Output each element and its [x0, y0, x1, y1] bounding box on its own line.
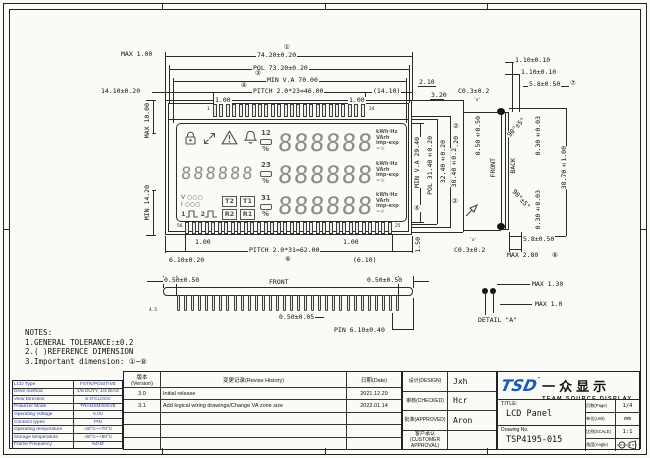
dim-line [463, 112, 501, 113]
meta-value: mm [616, 413, 639, 425]
bell-icon [244, 130, 257, 145]
pin-label-56: 56 [176, 225, 183, 230]
dim-line [392, 329, 413, 330]
meta-row: 角度(Angle) [585, 438, 639, 451]
signoff-label: 批准(APPROVED) [403, 411, 447, 430]
dim-s-1-10-b: 1.10±0.10 [520, 69, 557, 76]
pin [192, 222, 196, 234]
revision-date [346, 438, 401, 449]
dim-line [505, 74, 519, 75]
r1-box: R1 [240, 209, 255, 220]
spec-row: View Direction6 O'CLOCK [13, 395, 122, 403]
signoff-table: 设计(DESIGN)Jxh审核(CHECKED)Hcr批准(APPROVED)A… [402, 371, 497, 450]
unit-line: ~☼ [376, 147, 399, 153]
pin [264, 104, 268, 117]
meta-row: 单位(Unit)mm [585, 412, 639, 425]
pin [250, 222, 254, 234]
revision-history [160, 438, 346, 449]
dim-pitch-62: PITCH 2.0*31=62.00 [248, 247, 320, 254]
spec-row: Operating Voltage5.0V [13, 410, 122, 418]
pin [309, 104, 313, 117]
pin [361, 295, 364, 311]
dim-line [640, 229, 647, 230]
wave-icons: 1 2 [181, 209, 218, 218]
dim-s-38-70: 38.70±1.00 [560, 146, 569, 189]
dim-line [412, 236, 413, 253]
dim-line [165, 52, 166, 100]
dim-line [413, 281, 429, 282]
pin [355, 222, 359, 234]
signoff-label: 设计(DESIGN) [403, 372, 447, 391]
dim-32-40: 32.40±0.20 [439, 140, 448, 183]
zone3-percent: % [262, 211, 269, 218]
title-block: TSD ™ 一众显示 TEAM SOURCE DISPLAY TITLE: LC… [497, 371, 640, 450]
dim-line [519, 74, 520, 112]
warning-icon [221, 130, 238, 145]
dim-line [185, 235, 186, 251]
dim-3-20: 3.20 [430, 92, 448, 99]
dim-f-0-50-right: 0.50±0.50 [366, 277, 403, 284]
detail-a-label: DETAIL "A" [477, 317, 518, 324]
digit-group-1: 888888 [277, 131, 374, 155]
v-legend: V ○○○ [181, 194, 203, 201]
t1-box: T1 [240, 196, 255, 207]
zone3-label: 31 [261, 195, 271, 202]
dim-line [509, 249, 521, 250]
pin [277, 104, 281, 117]
pin [234, 295, 237, 311]
revision-date: 2022.01.14 [346, 400, 401, 411]
dim-6-10: 6.10±0.20 [168, 257, 205, 264]
pin [332, 295, 335, 311]
pin [211, 222, 215, 234]
dim-line [487, 448, 488, 455]
units-block-1: kWh·HzVArhimp-exp~☼ [376, 130, 399, 152]
meta-label: 比例(SCALE) [585, 426, 616, 438]
pin [303, 104, 307, 117]
revision-version [124, 425, 160, 436]
logo-chinese: 一众显示 [542, 376, 632, 395]
bottom-bend-blob [497, 223, 505, 230]
pin [341, 104, 345, 117]
front-pin-row [177, 295, 399, 311]
pin [245, 104, 249, 117]
meta-table: 页数(Page)1/4单位(Unit)mm比例(SCALE)1:1角度(Angl… [585, 399, 639, 451]
pin [347, 295, 350, 311]
revision-row [124, 437, 401, 449]
pin [339, 295, 342, 311]
signoff-row: 客户承认 (CUSTOMER APPROVAL) [403, 430, 496, 450]
signoff-row: 批准(APPROVED)Aron [403, 410, 496, 430]
pin [389, 295, 392, 311]
spec-table: LCD TypeFSTN/POSITIVEDrive method1/8 DUT… [12, 380, 123, 449]
dim-line [512, 62, 513, 112]
note-line: NOTES: [25, 328, 147, 338]
pin [271, 104, 275, 117]
dim-line [168, 119, 409, 120]
dim-max-height: MAX 1.00 [120, 51, 153, 58]
pin [191, 295, 194, 311]
dim-s-max-2-80: MAX 2.80 [506, 252, 539, 259]
pulse-icon [205, 209, 218, 218]
meta-row: 比例(SCALE)1:1 [585, 425, 639, 438]
pin [237, 222, 241, 234]
dim-line [412, 227, 450, 228]
dim-74-20: 74.20±0.20 [256, 52, 297, 59]
revision-row [124, 424, 401, 436]
revision-version [124, 438, 160, 449]
dim-ref-6-10: (6.10) [352, 257, 377, 264]
spec-label: Frame Frequency [13, 442, 73, 449]
spec-value: 64HZ [73, 442, 122, 449]
pin [219, 295, 222, 311]
circled-2b: ② [451, 198, 459, 205]
dim-va-29-40: MIN V.A 29.40 [413, 137, 422, 188]
dim-s-0-30-bottom: 0.30±0.03 [534, 190, 543, 229]
pin [257, 222, 261, 234]
r2-box: R2 [222, 209, 237, 220]
pin [239, 104, 243, 117]
dim-line [412, 224, 437, 225]
pin [368, 295, 371, 311]
pin [244, 222, 248, 234]
signoff-row: 审核(CHECKED)Hcr [403, 391, 496, 411]
dim-line [463, 230, 501, 231]
pin [185, 222, 189, 234]
dim-pitch-46: PITCH 2.0*23=46.00 [252, 88, 324, 95]
lock-icon [184, 131, 197, 146]
pin [277, 222, 281, 234]
revision-date: 2021.12.29 [346, 388, 401, 399]
pin [224, 222, 228, 234]
dim-1-00-a: 1.00 [214, 97, 232, 104]
dim-detail-max-1-30: MAX 1.30 [531, 281, 564, 288]
dim-line [412, 232, 463, 233]
pin [177, 295, 180, 311]
zone2-percent: % [262, 178, 269, 185]
pin [375, 295, 378, 311]
pin [218, 222, 222, 234]
pin [283, 222, 287, 234]
dim-max-10: MAX 10.00 [143, 103, 152, 138]
pin [205, 295, 208, 311]
small-digit-group: 888888 [180, 166, 255, 183]
dim-line [500, 304, 532, 305]
dim-s-5-8-top: 5.8±0.50 [528, 81, 561, 88]
zone1-label: 12 [261, 130, 271, 137]
pin [322, 104, 326, 117]
dim-line [413, 276, 414, 288]
dim-line [325, 3, 326, 10]
dim-line [412, 222, 424, 223]
circled-3: ③ [254, 70, 262, 77]
unit-line: ~☼ [376, 179, 399, 185]
pin [316, 222, 320, 234]
pin [226, 104, 230, 117]
dim-b1-00-a: 1.00 [194, 239, 212, 246]
nav-arrows-icon [203, 132, 216, 145]
unit-line: ~☼ [376, 210, 399, 216]
bottom-pin-row [185, 222, 392, 234]
meta-value: 1/4 [616, 399, 639, 412]
side-back-label: BACK [509, 158, 518, 174]
pin [205, 222, 209, 234]
dim-1-00-b: 1.00 [348, 97, 366, 104]
dim-line [412, 119, 437, 120]
note-line: 3.Important dimension: ①~⑧ [25, 357, 147, 367]
title-label: TITLE: [501, 401, 518, 407]
meta-row: 页数(Page)1/4 [585, 399, 639, 412]
pin [284, 104, 288, 117]
revision-header: 变更记录(Revise History) [160, 372, 346, 387]
dim-va-70: MIN V.A 70.00 [266, 77, 319, 84]
pin [381, 222, 385, 234]
pin [303, 222, 307, 234]
dim-line [505, 62, 514, 63]
dim-1-50: 1.50 [414, 237, 423, 253]
revision-history [160, 425, 346, 436]
dim-line [412, 52, 413, 100]
dim-f-4-5: 4.5 [148, 309, 158, 314]
pin [361, 104, 365, 117]
t2-box: T2 [222, 196, 237, 207]
dim-pol-31-40: POL 31.40±0.20 [426, 136, 435, 195]
pin [290, 104, 294, 117]
revision-row: 3.1Add logical wiring drawings/Change VA… [124, 399, 401, 411]
dim-line [463, 112, 464, 230]
dim-line [153, 100, 154, 133]
dim-line [418, 86, 436, 87]
pin [219, 104, 223, 117]
dim-s-x-bottom: 'x' [468, 239, 478, 244]
dim-line [485, 291, 486, 315]
side-front-label: FRONT [489, 158, 498, 178]
dim-line [409, 65, 410, 103]
dim-line [392, 313, 393, 330]
zone2-label: 23 [261, 162, 271, 169]
dim-s-1-10-a: 1.10±0.10 [514, 57, 551, 64]
i-legend: I ○○○ [181, 201, 200, 208]
dim-min-14-20: MIN 14.20 [143, 185, 152, 220]
revision-header: 版本(Version) [124, 372, 160, 387]
dim-line [3, 229, 10, 230]
pin [297, 295, 300, 311]
dim-line [173, 78, 174, 123]
pin [241, 295, 244, 311]
front-view-label: FRONT [268, 279, 290, 286]
pin [354, 104, 358, 117]
pin [388, 222, 392, 234]
dim-line [169, 65, 170, 103]
pin [198, 222, 202, 234]
dim-line [413, 298, 414, 330]
pin [262, 295, 265, 311]
circled-6: ⑥ [284, 256, 292, 263]
dim-2-10: 2.10 [418, 79, 436, 86]
dim-line [437, 119, 438, 224]
pin [290, 295, 293, 311]
dim-line [412, 123, 424, 124]
pin [335, 104, 339, 117]
pin [248, 295, 251, 311]
pin [375, 222, 379, 234]
spec-row: Storage temperature-30°C~+80°C [13, 433, 122, 441]
dim-line [412, 100, 463, 101]
dim-line [162, 3, 163, 10]
circled-7: ⑦ [569, 80, 577, 87]
digit-group-3: 888888 [277, 194, 374, 218]
signoff-value: Jxh [447, 372, 496, 391]
pin [318, 295, 321, 311]
notes: NOTES:1.GENERAL TOLERANCE:±0.22.( )REFER… [25, 328, 147, 366]
top-pin-row [213, 104, 365, 117]
revision-history: Add logical wiring drawings/Change VA zo… [160, 400, 346, 411]
circled-2: ② [452, 123, 460, 130]
pin [382, 295, 385, 311]
dim-s-c03-top: C0.3±0.2 [457, 88, 490, 95]
dim-line [152, 92, 213, 93]
dim-line [153, 190, 154, 235]
pin [296, 104, 300, 117]
dim-line [406, 78, 407, 123]
pin [325, 295, 328, 311]
pin [296, 222, 300, 234]
dim-f-0-50-left: 0.50±0.50 [163, 277, 200, 284]
dim-line [412, 116, 450, 117]
view-direction-arrow-icon [464, 203, 479, 218]
pin-label-25: 25 [394, 225, 401, 230]
revision-header-row: 版本(Version)变更记录(Revise History)日期(Date) [124, 372, 401, 387]
dim-line [325, 448, 326, 455]
dim-14-10: 14.10±0.20 [100, 88, 141, 95]
signoff-value: Hcr [447, 392, 496, 411]
circled-8: ⑧ [551, 252, 559, 259]
dim-line [165, 236, 166, 253]
zone1-percent: % [262, 146, 269, 153]
pin [354, 295, 357, 311]
units-block-3: kWh·HzVArhimp-exp~☼ [376, 193, 399, 215]
dim-f-0-50-0-05: 0.50±0.05 [278, 314, 315, 321]
revision-history: Initial release [160, 388, 346, 399]
dim-s-x-top: 'x' [472, 99, 482, 104]
pin [316, 104, 320, 117]
pin [329, 104, 333, 117]
tsd-logo-icon: TSD [499, 376, 539, 395]
pin [213, 104, 217, 117]
circled-5: ⑤ [413, 205, 421, 212]
dim-f-pin-6-10: PIN 6.10±0.40 [333, 327, 386, 334]
units-block-2: kWh·HzVArhimp-exp~☼ [376, 162, 399, 184]
drawing-no: TSP4195-015 [506, 435, 562, 445]
dim-line [392, 235, 393, 251]
pin [226, 295, 229, 311]
pin [349, 222, 353, 234]
circled-4: ④ [240, 82, 248, 89]
dim-s-38-40: 38.40±0.2 [450, 148, 459, 187]
pin [276, 295, 279, 311]
pin-label-1: 1 [206, 108, 211, 113]
pin [336, 222, 340, 234]
dim-line [146, 100, 156, 101]
spec-row: Operating temperature-20°C~+70°C [13, 425, 122, 433]
pin-label-24: 24 [368, 108, 375, 113]
digit-group-2: 888888 [277, 163, 374, 187]
pin [231, 222, 235, 234]
pin [311, 295, 314, 311]
pin [362, 222, 366, 234]
pulse-icon [186, 209, 199, 218]
pin [270, 222, 274, 234]
revision-date [346, 425, 401, 436]
meta-label: 单位(Unit) [585, 413, 616, 425]
pin [368, 222, 372, 234]
pin [283, 295, 286, 311]
dim-s-5-8-bottom: 5.8±0.50 [522, 236, 555, 243]
drawing-sheet: 12 % 888888 kWh·HzVArhimp-exp~☼ 888888 2… [0, 0, 650, 458]
revision-history [160, 413, 346, 424]
pin [309, 222, 313, 234]
pin [212, 295, 215, 311]
revision-date [346, 413, 401, 424]
revision-version: 3.0 [124, 388, 160, 399]
dim-s-0-50: 0.50±0.50 [474, 116, 483, 155]
dim-line [509, 108, 566, 109]
pin [342, 222, 346, 234]
dim-line [146, 235, 156, 236]
dim-ref-14-10: (14.10) [372, 88, 401, 95]
spec-row: Frame Frequency64HZ [13, 441, 122, 449]
signoff-value: Aron [447, 411, 496, 430]
signoff-label: 客户承认 (CUSTOMER APPROVAL) [403, 431, 447, 450]
signoff-row: 设计(DESIGN)Jxh [403, 372, 496, 391]
pin [329, 222, 333, 234]
dim-line [162, 448, 163, 455]
pin [396, 295, 399, 311]
spec-row: Polarizer ModeTRANSMISSIVE [13, 403, 122, 411]
dim-line [497, 284, 530, 285]
pin [232, 104, 236, 117]
revision-row: 3.0Initial release2021.12.29 [124, 387, 401, 399]
spec-row: Drive method1/8 DUTY, 1/4 BIAS [13, 388, 122, 396]
pin [269, 295, 272, 311]
pin [258, 104, 262, 117]
signoff-value [447, 431, 496, 450]
signoff-label: 审核(CHECKED) [403, 392, 447, 411]
revision-header: 日期(Date) [346, 372, 401, 387]
meta-label: 角度(Angle) [585, 439, 616, 451]
spec-row: Connect typesPIN [13, 418, 122, 426]
pin [322, 222, 326, 234]
meta-value: 1:1 [616, 426, 639, 438]
pin [184, 295, 187, 311]
pin [348, 104, 352, 117]
pin [304, 295, 307, 311]
note-line: 1.GENERAL TOLERANCE:±0.2 [25, 338, 147, 348]
pin [198, 295, 201, 311]
projection-symbol-icon [616, 439, 639, 451]
revision-version: 3.1 [124, 400, 160, 411]
drawing-no-label: Drawing No. [501, 427, 529, 433]
pin [264, 222, 268, 234]
dim-line [430, 99, 444, 100]
dim-line [487, 3, 488, 10]
dim-line [493, 291, 494, 313]
revision-row [124, 412, 401, 424]
drawing-title: LCD Panel [506, 409, 552, 419]
pin [290, 222, 294, 234]
note-line: 2.( )REFERENCE DIMENSION [25, 347, 147, 357]
meta-label: 页数(Page) [585, 399, 616, 412]
